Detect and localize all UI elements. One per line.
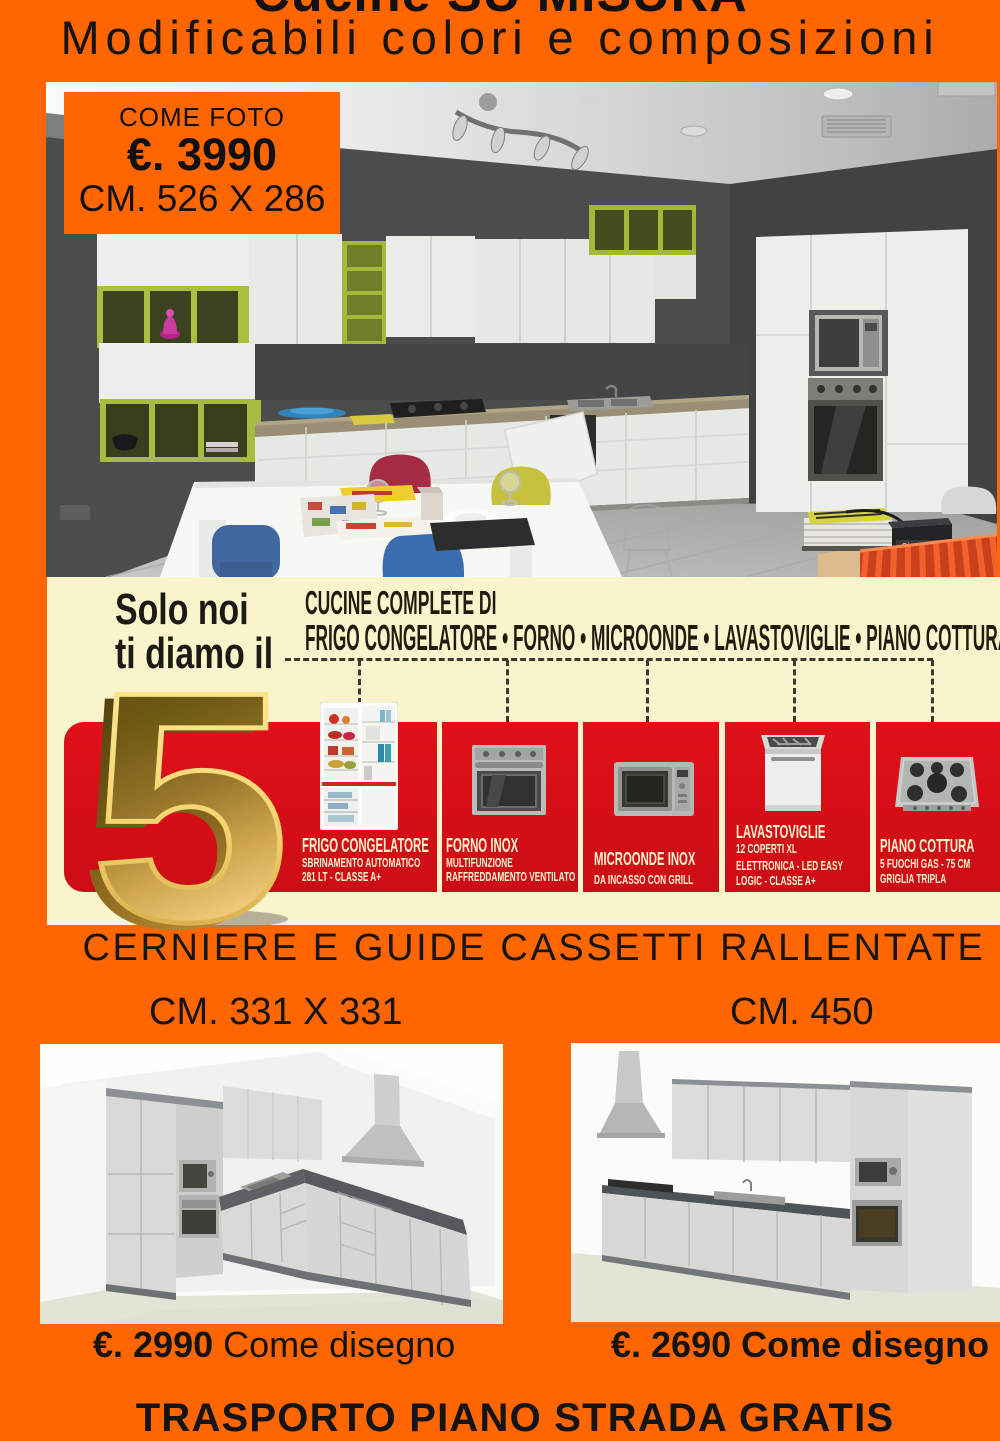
svg-text:5: 5 bbox=[90, 650, 290, 940]
